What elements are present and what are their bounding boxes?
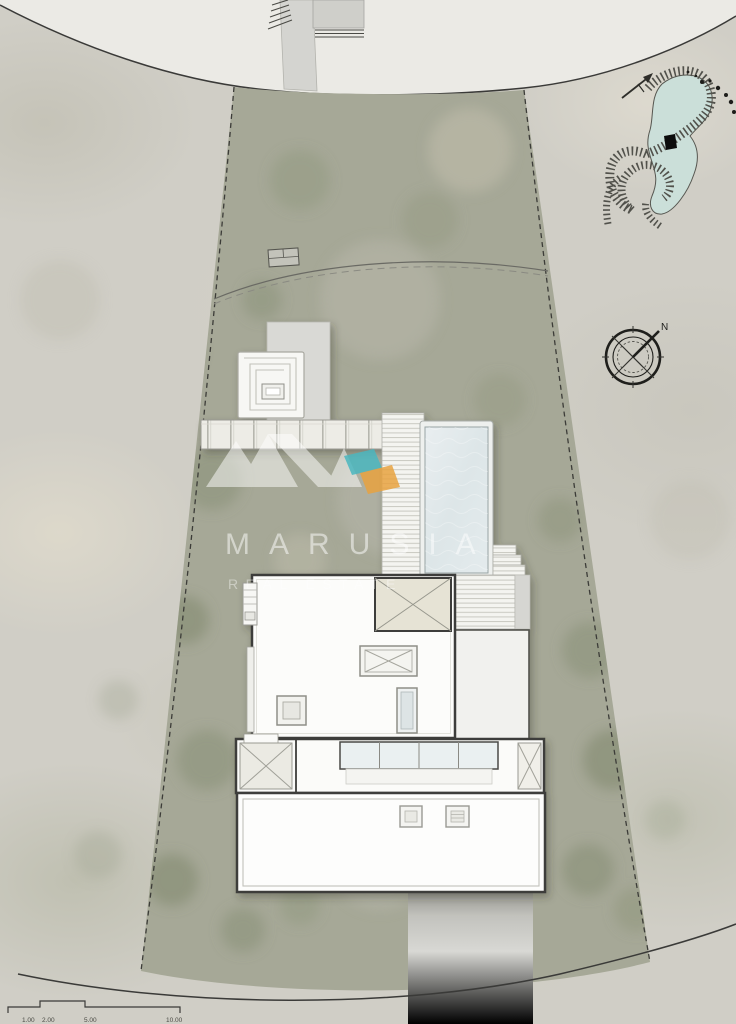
roof-vent-left: [400, 806, 422, 827]
top-driveway-strip: [280, 0, 317, 91]
scale-bar-line: [8, 1001, 180, 1013]
scale-label-5: 5.00: [84, 1017, 97, 1024]
lower-deck: [455, 575, 515, 629]
lower-roof: [237, 793, 545, 892]
compass: N: [602, 322, 668, 388]
scale-label-2: 2.00: [42, 1017, 55, 1024]
brand-tagline-text: REAL ESTATE: [228, 576, 403, 592]
compass-needle: [633, 331, 659, 357]
bottom-driveway: [408, 892, 533, 1024]
upper-road: [0, 0, 736, 95]
deck-side-strip: [515, 575, 530, 629]
middle-band-skylight-right: [518, 743, 541, 789]
utility-box: [268, 248, 299, 267]
compass-north-label: N: [661, 322, 668, 333]
scale-label-1: 1.00: [22, 1017, 35, 1024]
middle-band-skylight-left: [240, 743, 292, 789]
middle-band: [236, 734, 544, 793]
upper-road-surface: [0, 0, 736, 95]
key-map-north-arrow: [622, 73, 653, 98]
brand-name-text: MARUSIA: [225, 528, 495, 561]
annex-roof: [453, 630, 529, 740]
key-map: [607, 71, 736, 226]
scale-label-10: 10.00: [166, 1017, 183, 1024]
roof-chimney: [277, 696, 306, 725]
roof-edge-detail: [247, 647, 254, 732]
key-map-lot-marker: [664, 134, 677, 150]
site-plan-canvas: N 1.00 2.00 5.00 10.00 MARUSIA REAL ESTA…: [0, 0, 736, 1024]
spiral-ramp: [238, 352, 304, 418]
roof-vent-right: [446, 806, 469, 827]
clerestory-glazing: [340, 742, 498, 784]
site-plan-drawing: N 1.00 2.00 5.00 10.00 MARUSIA REAL ESTA…: [0, 0, 736, 1024]
top-driveway-pad: [313, 0, 364, 28]
skylight-center: [360, 646, 417, 676]
skylight-narrow: [397, 688, 417, 733]
main-roof: [243, 575, 455, 738]
scale-bar: 1.00 2.00 5.00 10.00: [8, 1001, 183, 1024]
